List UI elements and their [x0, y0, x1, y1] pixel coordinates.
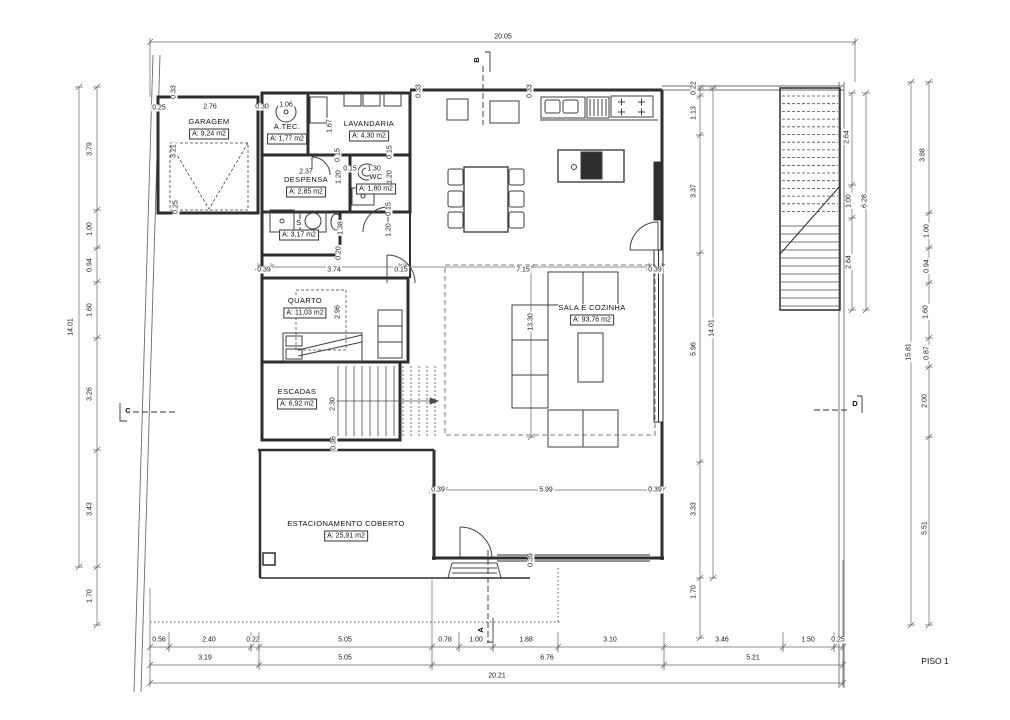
windows-glazing [497, 162, 663, 561]
garage-door [170, 143, 248, 210]
window-pier [654, 162, 663, 220]
sofa-set [512, 272, 618, 447]
parking-column [263, 553, 275, 565]
floor-plan-sheet: PISO 1 20.0514.013.791.000.941.603.263.4… [0, 0, 1010, 720]
stove [611, 96, 653, 117]
doors [170, 143, 658, 578]
entrance-door [448, 527, 501, 578]
garage-walls [158, 97, 258, 213]
terrace-door [630, 222, 658, 250]
kitchen-island [558, 150, 624, 182]
section-lines [120, 52, 862, 643]
section-marker-bracket-d [857, 396, 862, 413]
wc-fixtures [352, 164, 376, 205]
boiler [276, 102, 296, 122]
stairs [330, 96, 839, 436]
dimension-lines [75, 38, 933, 687]
bedroom-walls [262, 278, 408, 362]
section-marker-bracket-b [485, 52, 490, 72]
coffee-table [578, 333, 603, 382]
dining-table [448, 167, 524, 232]
section-marker-bracket-c [120, 403, 127, 421]
bedroom-furniture [283, 290, 402, 362]
site-boundary [134, 55, 844, 692]
kitchen-counter [447, 96, 658, 123]
floor-plan-drawing [0, 0, 1010, 720]
interior-doors [312, 157, 415, 283]
furniture [270, 94, 658, 447]
wardrobe [378, 310, 402, 358]
laundry-fixtures [310, 94, 401, 123]
exterior-stair-outline [780, 88, 840, 310]
